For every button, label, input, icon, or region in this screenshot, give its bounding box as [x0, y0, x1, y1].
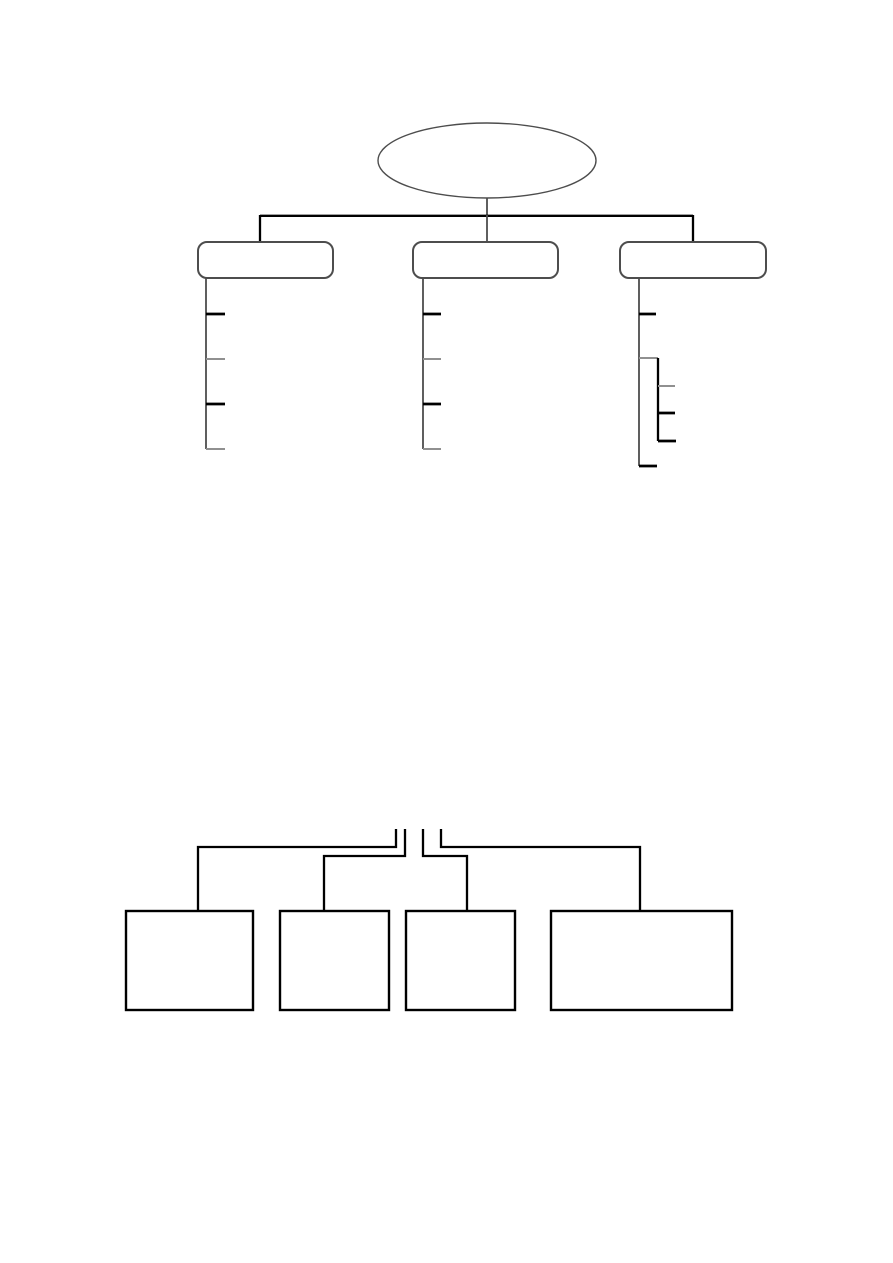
document-page: [0, 0, 893, 1263]
block-node-3: [406, 911, 515, 1010]
branch-node-3: [620, 242, 766, 278]
branch-node-1: [198, 242, 333, 278]
connector-block-2: [324, 829, 405, 911]
block-diagram: [126, 829, 732, 1010]
tree-diagram: [198, 123, 766, 466]
branch-3-tick-list: [639, 278, 676, 466]
diagram-canvas: [0, 0, 893, 1263]
block-node-1: [126, 911, 253, 1010]
block-node-2: [280, 911, 389, 1010]
branch-1-tick-list: [206, 278, 225, 449]
connector-block-3: [423, 829, 467, 910]
block-node-4: [551, 911, 732, 1010]
branch-2-tick-list: [423, 278, 441, 449]
connector-block-4: [441, 829, 640, 911]
root-ellipse-node: [378, 123, 596, 198]
branch-node-2: [413, 242, 558, 278]
connector-block-1: [198, 829, 396, 911]
